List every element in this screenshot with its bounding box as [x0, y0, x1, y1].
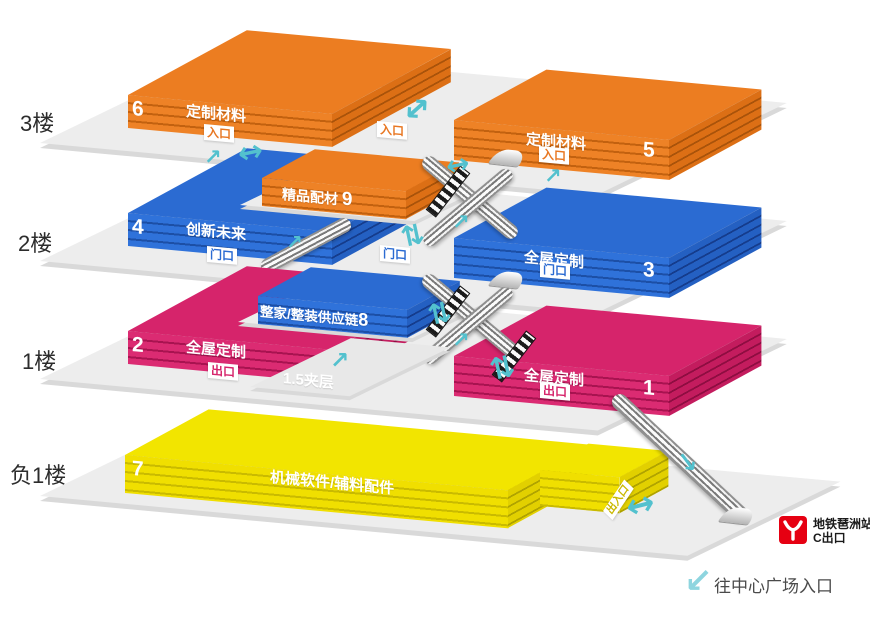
- floor3-mid-entrance-label: 入口: [377, 121, 407, 140]
- hall8-number: 8: [358, 309, 368, 330]
- hall9-number: 9: [342, 189, 353, 211]
- hall6-number: 6: [132, 97, 144, 122]
- hall4-number: 4: [132, 215, 144, 240]
- arrow-down-left-icon: ↙: [684, 564, 713, 598]
- arrow-up-right-icon: ↗: [452, 330, 470, 351]
- arrow-up-right-icon: ↗: [204, 147, 222, 168]
- hall3-number: 3: [643, 258, 655, 283]
- floorB1-label: 负1楼: [10, 458, 66, 490]
- hall7-number: 7: [132, 457, 144, 482]
- arrow-up-right-icon: ↗: [544, 166, 562, 187]
- hall4-door-label: 门口: [207, 246, 237, 265]
- arrow-up-right-icon: ↗: [452, 212, 470, 233]
- arrow-down-right-icon: ↘: [674, 449, 699, 478]
- hall5-entrance-label: 入口: [539, 146, 569, 165]
- hall1-exit-label: 出口: [540, 382, 570, 401]
- hall2-number: 2: [132, 333, 144, 358]
- hall1-number: 1: [643, 376, 655, 401]
- hall2-exit-label: 出口: [208, 362, 238, 381]
- hall5-number: 5: [643, 138, 655, 163]
- floor2-label: 2楼: [18, 226, 52, 258]
- hall3-door-label: 门口: [540, 261, 570, 280]
- metro-exit-label: C出口: [813, 531, 846, 545]
- hall6-entrance-label: 入口: [204, 124, 234, 143]
- plaza-entrance-note: 往中心广场入口: [714, 572, 833, 597]
- arrow-up-right-icon: ↗: [330, 350, 349, 373]
- metro-logo-icon: [779, 516, 807, 544]
- floor3-label: 3楼: [20, 106, 54, 138]
- floor1-label: 1楼: [22, 344, 56, 376]
- metro-station-label: 地铁琶洲站: [813, 517, 870, 531]
- arrow-up-right-icon: ↗: [286, 232, 303, 252]
- metro-y-glyph: [779, 516, 807, 544]
- floor-map-diagram: 3楼 2楼 1楼 负1楼 定制材料 定制材料 创新未来 全屋定制 全屋定制 全屋…: [0, 0, 870, 632]
